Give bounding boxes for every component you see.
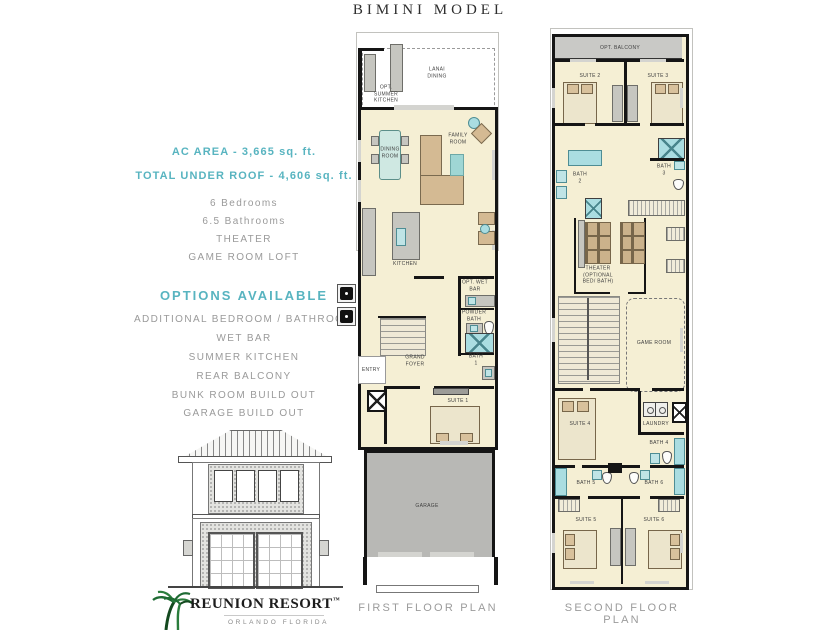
room-label-suite5: SUITE 5	[576, 517, 597, 524]
ground-line	[168, 586, 343, 588]
room-label-dining: DINING ROOM	[380, 147, 399, 160]
shower	[465, 333, 494, 353]
palm-trees-icon	[148, 590, 194, 630]
garage-elevation-drawing	[168, 428, 343, 590]
sink	[650, 453, 660, 464]
window	[214, 470, 233, 502]
breakfast-table	[480, 224, 490, 234]
theater-seat	[631, 250, 645, 264]
floor-plan-sheet: BIMINI MODEL AC AREA - 3,665 sq. ft. TOT…	[0, 0, 840, 630]
kitchen-sink	[396, 228, 406, 246]
driveway-step	[376, 585, 479, 593]
theater-screen	[578, 220, 585, 268]
first-floor-plan: LANAI DINING OPT. SUMMER KITCHEN DINING …	[354, 30, 502, 595]
roof-truss	[182, 430, 330, 458]
sink	[640, 470, 650, 480]
pilaster	[319, 540, 329, 556]
room-label-bath6: BATH 6	[645, 480, 664, 487]
closet-panel	[612, 85, 623, 122]
feature-theater: THEATER	[94, 234, 394, 245]
room-label-game-room: GAME ROOM	[637, 340, 671, 347]
shower	[585, 198, 602, 219]
theater-seat	[597, 222, 611, 236]
window	[236, 470, 255, 502]
room-label-suite3: SUITE 3	[648, 73, 669, 80]
pillow	[655, 84, 666, 94]
option-bunk-room: BUNK ROOM BUILD OUT	[94, 390, 394, 401]
elevator	[672, 402, 687, 423]
page-title: BIMINI MODEL	[310, 2, 550, 19]
theater-seat	[631, 236, 645, 250]
pillow	[565, 548, 575, 560]
garage-door	[208, 532, 255, 589]
pillow	[562, 401, 574, 412]
sink	[674, 161, 685, 170]
room-label-bath3: BATH 3	[657, 164, 671, 177]
room-label-laundry: LAUNDRY	[643, 421, 669, 428]
closet-panel	[625, 528, 636, 566]
option-summer-kitchen: SUMMER KITCHEN	[94, 352, 394, 363]
theater-seat	[597, 236, 611, 250]
window	[258, 470, 277, 502]
area-rug	[450, 154, 464, 176]
second-floor-caption: SECOND FLOOR PLAN	[550, 602, 694, 626]
garage-door	[256, 532, 303, 589]
room-label-suite2: SUITE 2	[580, 73, 601, 80]
room-label-bath4: BATH 4	[650, 440, 669, 447]
option-wet-bar: WET BAR	[94, 333, 394, 344]
room-label-entry: ENTRY	[362, 367, 380, 374]
pillow	[577, 401, 589, 412]
closet-panel	[627, 85, 638, 122]
bathtub	[555, 468, 567, 496]
pillow	[565, 534, 575, 546]
pilaster	[183, 540, 193, 556]
room-label-kitchen: KITCHEN	[393, 261, 417, 268]
dryer	[655, 402, 668, 417]
shower	[658, 138, 685, 159]
pillow	[668, 84, 679, 94]
room-label-garage: GARAGE	[415, 503, 438, 510]
stairs	[380, 318, 426, 356]
closet	[658, 499, 680, 512]
pillow	[670, 548, 680, 560]
breakfast-chair	[478, 212, 495, 225]
bathtub	[674, 438, 685, 465]
sink	[592, 470, 602, 480]
logo-divider	[224, 615, 324, 616]
theater-seat	[631, 222, 645, 236]
pillow	[581, 84, 593, 94]
room-label-balcony: OPT. BALCONY	[600, 45, 640, 52]
room-label-wet-bar: OPT. WET BAR	[462, 280, 489, 293]
room-label-family: FAMILY ROOM	[448, 133, 467, 146]
closet	[666, 259, 685, 273]
ac-area-text: AC AREA - 3,665 sq. ft.	[94, 146, 394, 158]
option-rear-balcony: REAR BALCONY	[94, 371, 394, 382]
dining-chair	[401, 154, 409, 164]
sofa	[420, 175, 464, 205]
closet	[628, 200, 685, 216]
sink	[556, 170, 567, 183]
room-label-powder: POWDER BATH	[462, 310, 486, 323]
wet-bar-sink	[468, 297, 476, 305]
room-label-bath1: BATH 1	[469, 354, 483, 367]
stair-rail	[587, 298, 589, 380]
reunion-resort-logo: REUNION RESORT™ ORLANDO FLORIDA	[146, 590, 356, 630]
window	[280, 470, 299, 502]
sink	[556, 186, 567, 199]
dining-chair	[401, 136, 409, 146]
room-label-suite1: SUITE 1	[448, 398, 469, 405]
logo-name: REUNION RESORT™	[190, 596, 340, 613]
logo-subtitle: ORLANDO FLORIDA	[228, 619, 329, 626]
room-label-bath5: BATH 5	[577, 480, 596, 487]
stairs	[558, 296, 620, 384]
closet	[558, 499, 580, 512]
option-garage-build-out: GARAGE BUILD OUT	[94, 408, 394, 419]
trademark-symbol: ™	[333, 596, 341, 604]
dining-chair	[371, 136, 379, 146]
bath1-sink	[485, 369, 492, 377]
feature-bathrooms: 6.5 Bathrooms	[94, 216, 394, 227]
media-console	[433, 388, 469, 395]
room-label-lanai: LANAI DINING	[427, 67, 446, 80]
elevator	[367, 390, 387, 412]
kitchen-counter	[362, 208, 376, 276]
sofa	[420, 135, 442, 179]
room-label-bath2: BATH 2	[573, 172, 587, 185]
driveway	[363, 557, 498, 585]
first-floor-caption: FIRST FLOOR PLAN	[354, 602, 502, 614]
feature-bedrooms: 6 Bedrooms	[94, 198, 394, 209]
bathtub	[568, 150, 602, 166]
closet	[666, 227, 685, 241]
second-floor-plan: OPT. BALCONY SUITE 2 SUITE 3 BATH 2 BATH…	[550, 28, 694, 603]
powder-sink	[470, 325, 478, 332]
theater-seat	[597, 250, 611, 264]
feature-game-room-loft: GAME ROOM LOFT	[94, 252, 394, 263]
pillow	[670, 534, 680, 546]
closet-panel	[610, 528, 621, 566]
total-under-roof-text: TOTAL UNDER ROOF - 4,606 sq. ft.	[94, 170, 394, 182]
bathtub	[674, 468, 685, 495]
dining-chair	[371, 154, 379, 164]
room-label-suite6: SUITE 6	[644, 517, 665, 524]
room-label-suite4: SUITE 4	[570, 421, 591, 428]
room-label-theater: THEATER (OPTIONAL BED/ BATH)	[583, 265, 614, 285]
pillow	[567, 84, 579, 94]
room-label-summer-kitchen: OPT. SUMMER KITCHEN	[374, 84, 398, 104]
room-label-foyer: GRAND FOYER	[405, 355, 425, 368]
